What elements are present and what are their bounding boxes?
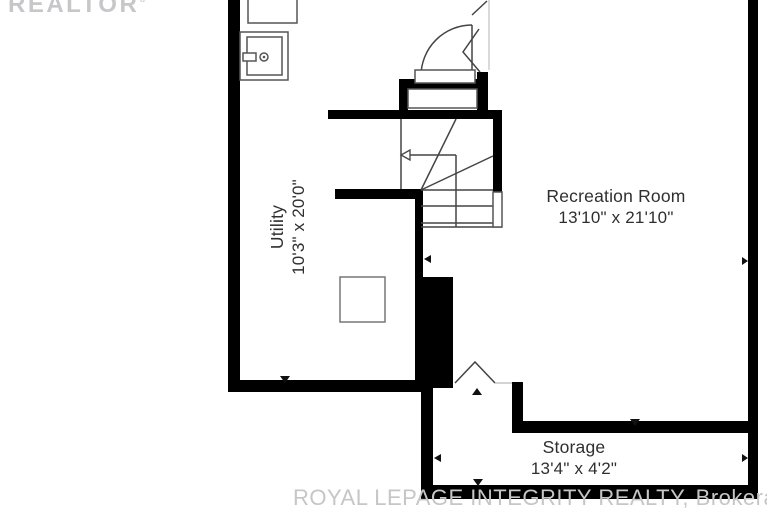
fixtures bbox=[240, 0, 385, 322]
walk-line-arrowhead bbox=[401, 150, 410, 160]
floorplan-canvas: REALTOR® Utility 10'3" x 20'0" Recreatio… bbox=[0, 0, 767, 511]
furnace-icon bbox=[340, 277, 385, 322]
dim-arrow-right-storage bbox=[742, 454, 748, 462]
wall-utility-bottom bbox=[228, 380, 433, 392]
wall-stair-right bbox=[493, 110, 502, 193]
winder-tread-2 bbox=[421, 156, 493, 190]
stair-landing bbox=[408, 89, 477, 108]
wall-door-left-jamb bbox=[399, 79, 408, 111]
registered-mark-icon: ® bbox=[139, 0, 146, 4]
dim-arrow-left-storage bbox=[434, 454, 441, 462]
stair-break-line bbox=[463, 0, 489, 72]
room-label-recreation: Recreation Room 13'10" x 21'10" bbox=[496, 186, 736, 228]
entry-door bbox=[415, 25, 475, 83]
duct-chimney-mass bbox=[423, 277, 453, 388]
sink-knob-dot bbox=[263, 56, 266, 59]
wall-stair-left-vertical bbox=[415, 189, 423, 392]
room-dimensions: 10'3" x 20'0" bbox=[288, 167, 309, 287]
dim-arrow-up-passage bbox=[472, 388, 482, 395]
room-label-storage: Storage 13'4" x 4'2" bbox=[474, 437, 674, 479]
sink-faucet bbox=[243, 53, 256, 61]
wall-right bbox=[748, 0, 758, 499]
wall-left bbox=[228, 0, 240, 392]
washer-icon bbox=[248, 0, 297, 23]
floorplan-drawing bbox=[0, 0, 767, 511]
bifold-leaves bbox=[455, 362, 495, 383]
door-threshold bbox=[415, 70, 475, 83]
wall-storage-left bbox=[421, 380, 433, 499]
room-dimensions: 13'4" x 4'2" bbox=[474, 458, 674, 479]
realtor-text: REALTOR bbox=[8, 0, 139, 18]
break-segment-upper bbox=[472, 1, 487, 15]
wall-stair-left-horizontal bbox=[335, 189, 423, 199]
room-name: Utility bbox=[267, 167, 288, 287]
room-dimensions: 13'10" x 21'10" bbox=[496, 207, 736, 228]
bifold-door-icon bbox=[455, 362, 512, 383]
dim-arrow-right-recreation bbox=[742, 257, 748, 265]
room-label-utility: Utility 10'3" x 20'0" bbox=[267, 167, 307, 287]
room-name: Recreation Room bbox=[496, 186, 736, 207]
wall-stair-top bbox=[328, 110, 502, 119]
wall-door-right-jamb bbox=[477, 72, 488, 111]
brokerage-watermark: ROYAL LEPAGE INTEGRITY REALTY, Brokerage bbox=[293, 485, 767, 511]
realtor-watermark: REALTOR® bbox=[8, 0, 146, 19]
laundry-sink-icon bbox=[240, 32, 288, 80]
dim-arrow-left-recreation bbox=[424, 255, 431, 263]
room-name: Storage bbox=[474, 437, 674, 458]
